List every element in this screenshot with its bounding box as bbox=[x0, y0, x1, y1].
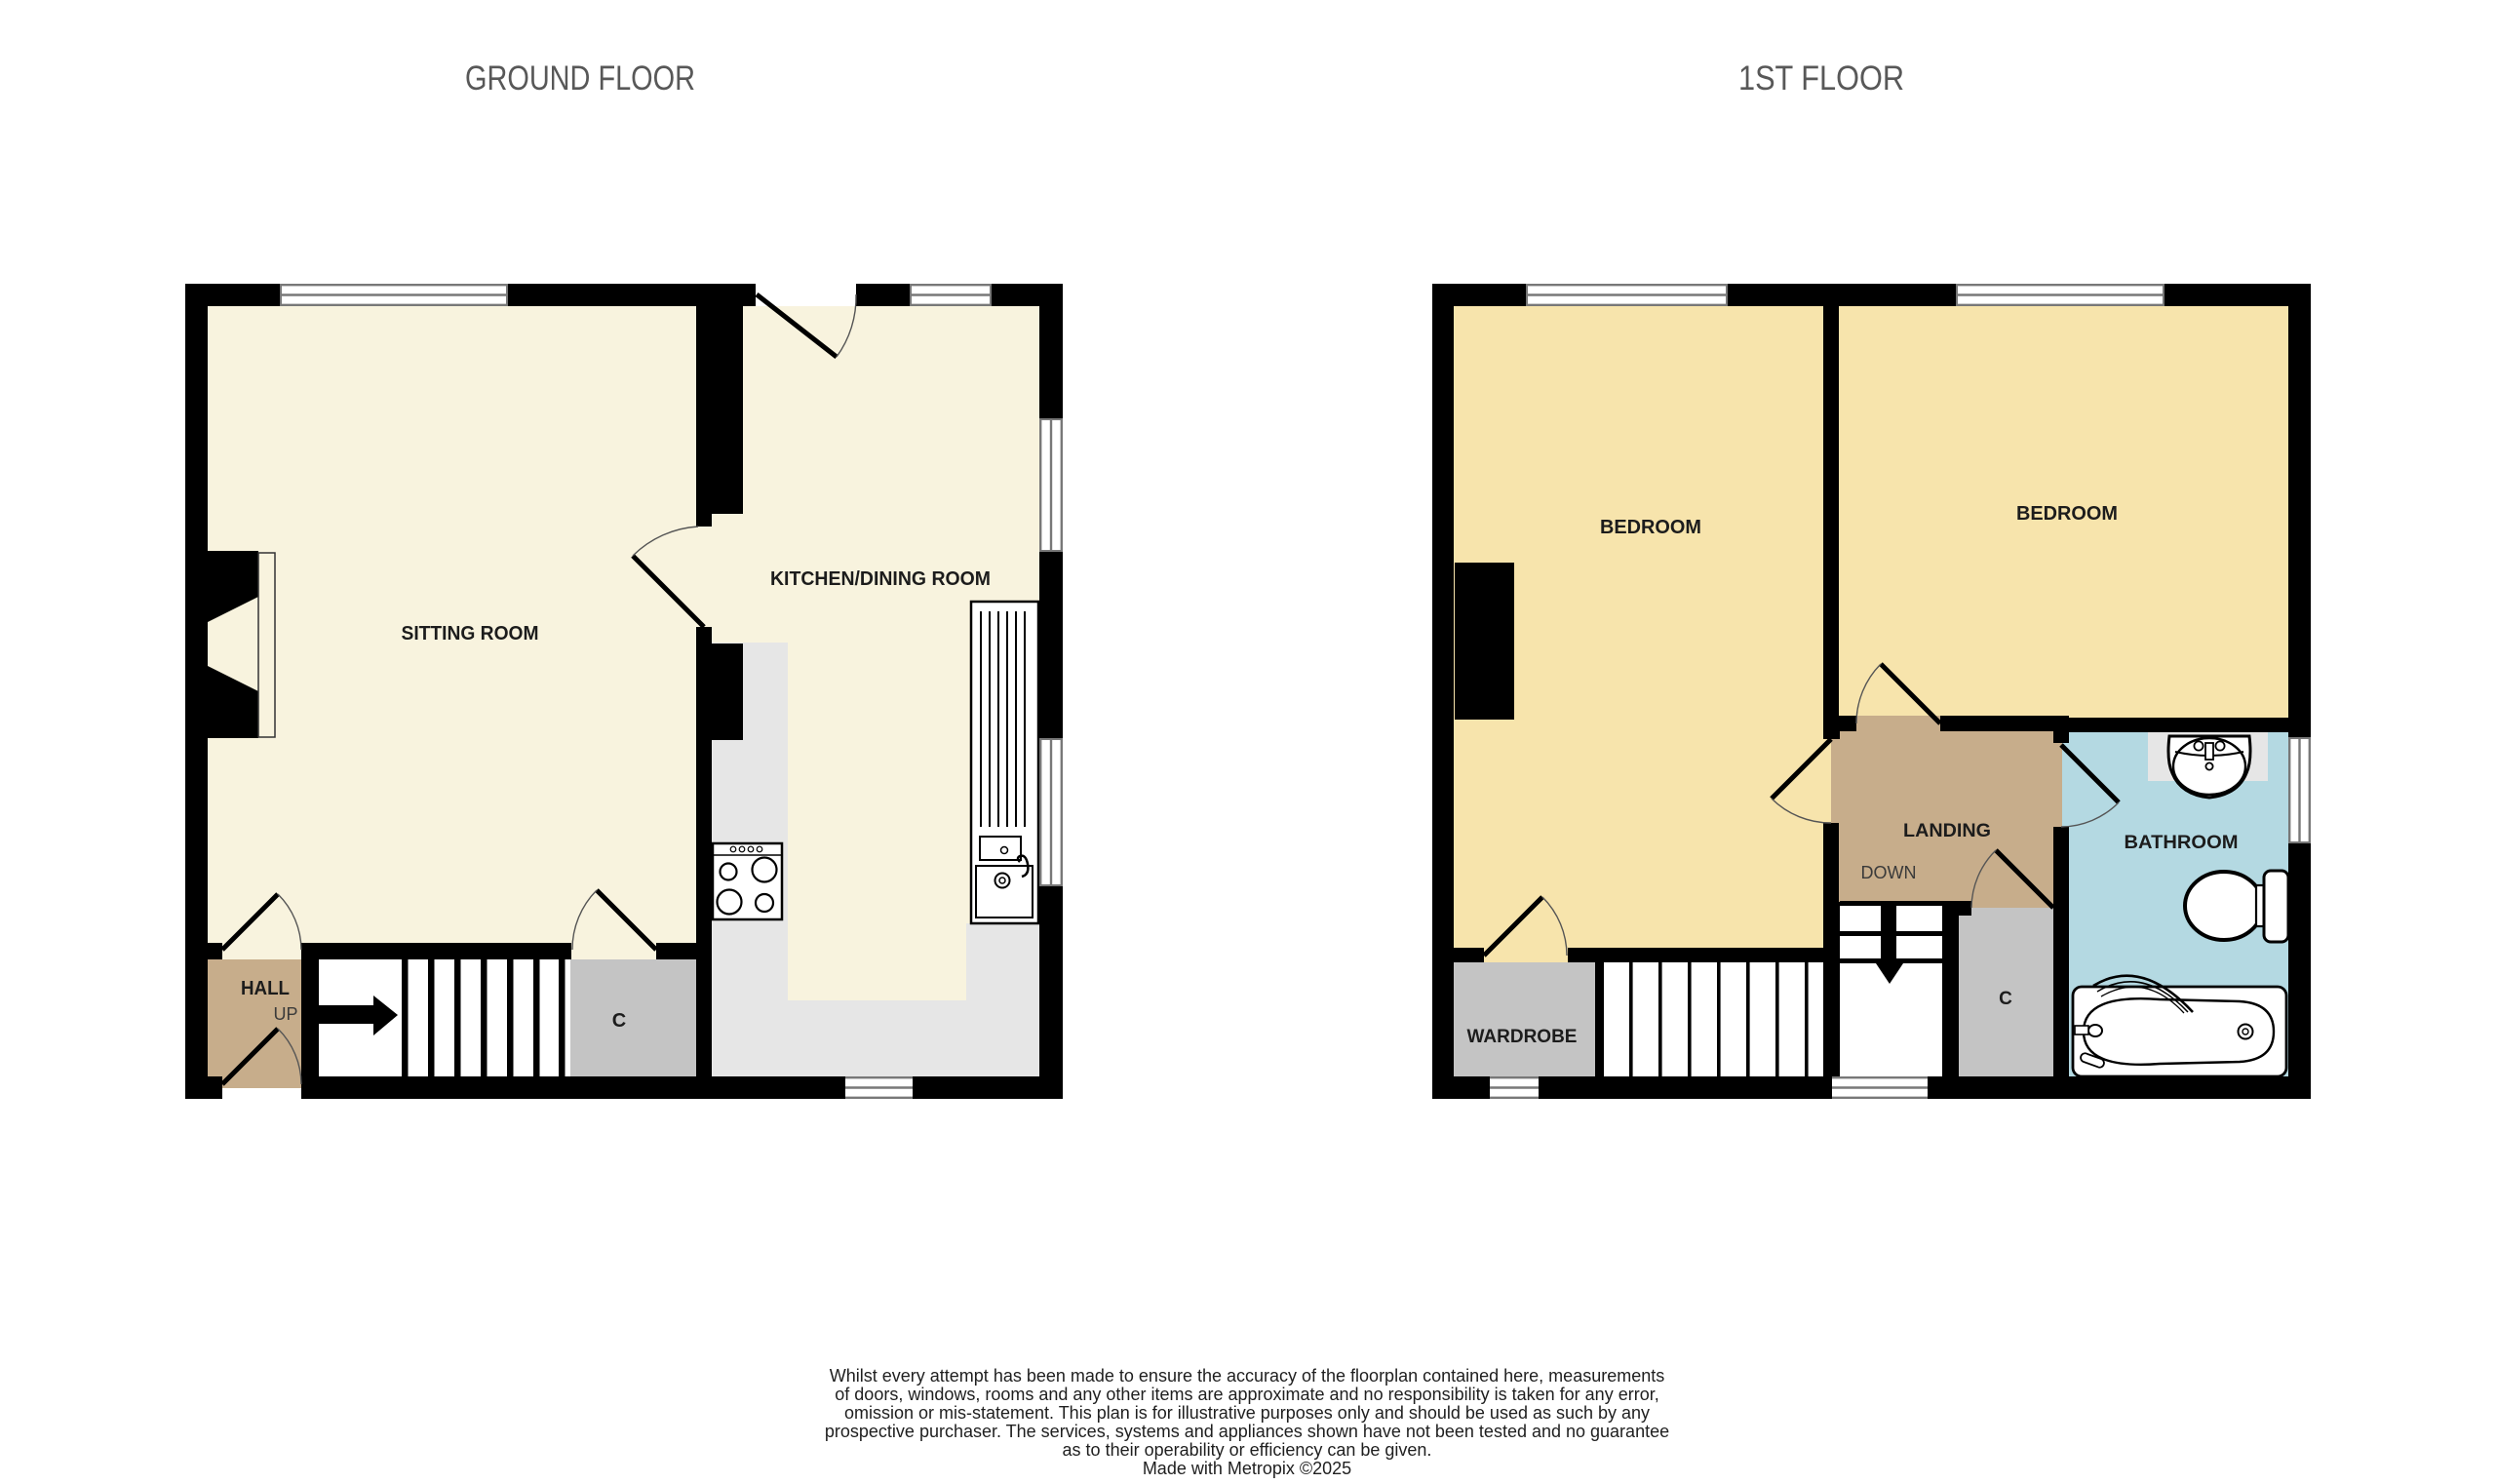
svg-text:DOWN: DOWN bbox=[1861, 863, 1917, 882]
svg-text:as to their operability or eff: as to their operability or efficiency ca… bbox=[1063, 1440, 1432, 1460]
svg-text:SITTING ROOM: SITTING ROOM bbox=[402, 623, 539, 644]
svg-text:C: C bbox=[612, 1010, 626, 1032]
svg-text:Made with Metropix ©2025: Made with Metropix ©2025 bbox=[1143, 1459, 1351, 1478]
svg-text:LANDING: LANDING bbox=[1903, 821, 1991, 841]
svg-text:omission or mis-statement. Thi: omission or mis-statement. This plan is … bbox=[844, 1403, 1650, 1423]
svg-text:C: C bbox=[1999, 989, 2012, 1009]
svg-text:BEDROOM: BEDROOM bbox=[1600, 517, 1701, 538]
svg-text:GROUND FLOOR: GROUND FLOOR bbox=[465, 59, 695, 98]
svg-text:BATHROOM: BATHROOM bbox=[2125, 833, 2239, 853]
svg-text:1ST FLOOR: 1ST FLOOR bbox=[1738, 59, 1904, 98]
svg-text:BEDROOM: BEDROOM bbox=[2016, 503, 2118, 525]
svg-text:KITCHEN/DINING ROOM: KITCHEN/DINING ROOM bbox=[770, 568, 991, 590]
svg-text:UP: UP bbox=[273, 1004, 297, 1024]
svg-text:of doors, windows, rooms and a: of doors, windows, rooms and any other i… bbox=[835, 1385, 1658, 1404]
svg-text:Whilst every attempt has been: Whilst every attempt has been made to en… bbox=[830, 1366, 1664, 1386]
svg-text:WARDROBE: WARDROBE bbox=[1467, 1027, 1578, 1047]
svg-text:prospective purchaser. The ser: prospective purchaser. The services, sys… bbox=[825, 1422, 1669, 1441]
svg-text:HALL: HALL bbox=[241, 978, 290, 999]
